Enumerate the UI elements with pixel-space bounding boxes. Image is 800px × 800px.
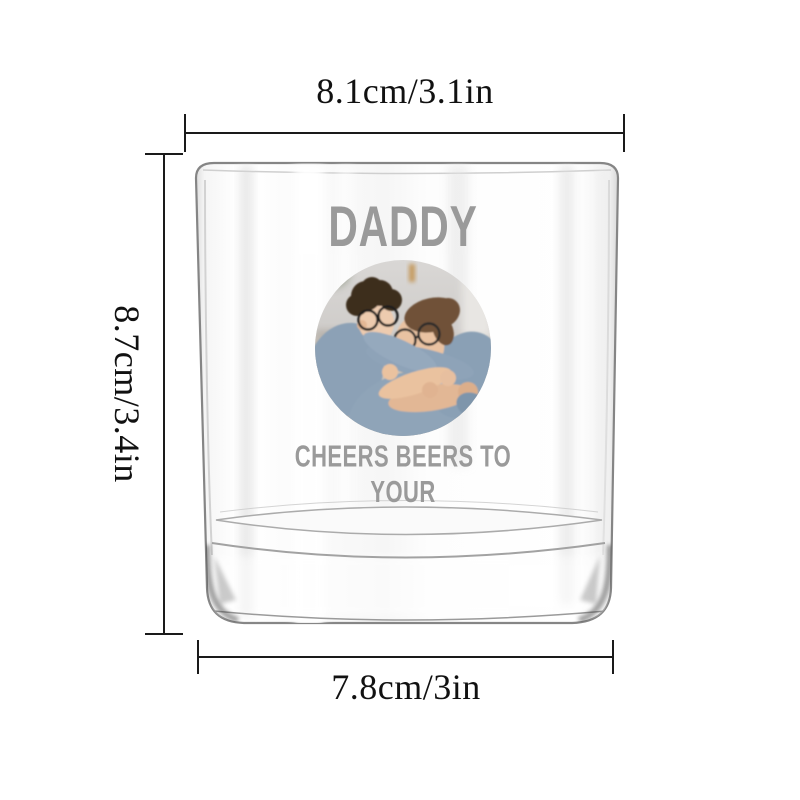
height-top-tick bbox=[145, 153, 183, 155]
height-dimension-line bbox=[163, 154, 165, 634]
height-dimension-label: 8.7cm/3.4in bbox=[105, 244, 149, 544]
top-width-dimension-line bbox=[185, 132, 625, 134]
engraved-caption: CHEERS BEERS TO YOUR bbox=[271, 440, 535, 511]
glass-base bbox=[207, 501, 610, 621]
top-width-right-tick bbox=[623, 114, 625, 152]
bottom-width-dimension-label: 7.8cm/3in bbox=[198, 666, 614, 708]
product-image: DADDY CHEERS BEERS TO YOUR 8.1cm/3.1in 8… bbox=[0, 0, 800, 800]
top-width-left-tick bbox=[184, 114, 186, 152]
top-width-dimension-label: 8.1cm/3.1in bbox=[185, 70, 625, 112]
bottom-width-dimension-line bbox=[198, 656, 614, 658]
height-bottom-tick bbox=[145, 633, 183, 635]
engraved-title: DADDY bbox=[276, 195, 531, 261]
